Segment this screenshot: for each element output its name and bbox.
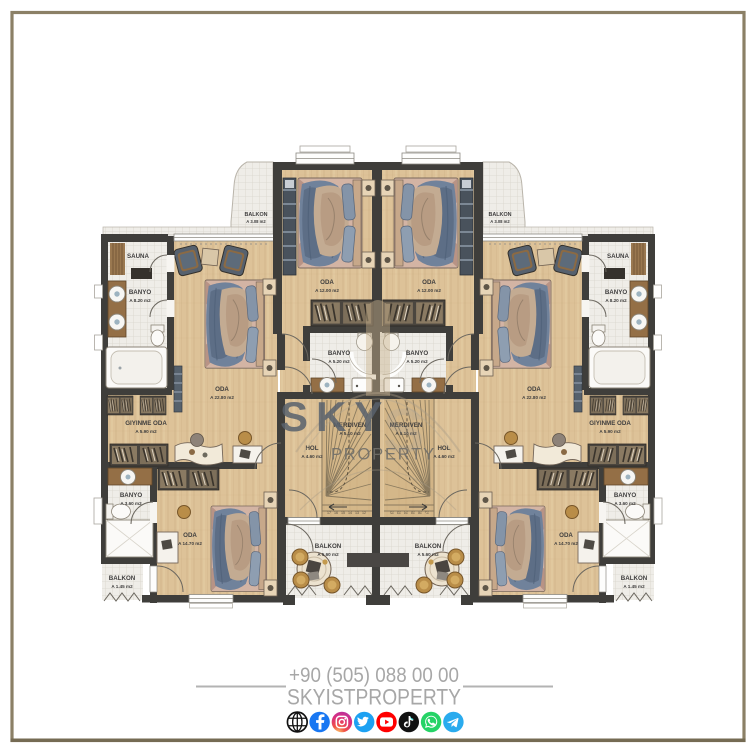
svg-text:ODA: ODA bbox=[527, 386, 541, 393]
svg-text:A 14.70 m2: A 14.70 m2 bbox=[554, 541, 578, 546]
svg-text:A 8.20 m2: A 8.20 m2 bbox=[129, 298, 151, 303]
svg-text:BALKON: BALKON bbox=[244, 212, 267, 218]
svg-text:14: 14 bbox=[348, 511, 352, 515]
svg-text:BALKON: BALKON bbox=[415, 543, 442, 550]
svg-text:ODA: ODA bbox=[422, 279, 436, 286]
svg-text:GIYINME ODA: GIYINME ODA bbox=[589, 420, 631, 427]
svg-text:16: 16 bbox=[418, 511, 422, 515]
svg-text:ODA: ODA bbox=[215, 386, 229, 393]
svg-text:BANYO: BANYO bbox=[605, 289, 628, 296]
svg-text:14: 14 bbox=[404, 511, 408, 515]
svg-text:A 5.20 m2: A 5.20 m2 bbox=[328, 359, 350, 364]
svg-text:A 22.80 m2: A 22.80 m2 bbox=[522, 395, 546, 400]
svg-text:A 5.60 m2: A 5.60 m2 bbox=[417, 552, 439, 557]
svg-text:A 4.60 m2: A 4.60 m2 bbox=[433, 454, 455, 459]
svg-text:HOL: HOL bbox=[305, 445, 318, 452]
svg-text:A 1.45 m2: A 1.45 m2 bbox=[623, 584, 645, 589]
svg-text:A 14.70 m2: A 14.70 m2 bbox=[178, 541, 202, 546]
svg-text:SKYISTPROPERTY: SKYISTPROPERTY bbox=[287, 685, 461, 710]
svg-text:BANYO: BANYO bbox=[614, 492, 637, 499]
svg-text:A 5.90 m2: A 5.90 m2 bbox=[599, 429, 621, 434]
svg-text:17: 17 bbox=[327, 511, 331, 515]
svg-text:A 1.45 m2: A 1.45 m2 bbox=[111, 584, 133, 589]
svg-text:A 12.00 m2: A 12.00 m2 bbox=[417, 288, 441, 293]
svg-text:A 4.60 m2: A 4.60 m2 bbox=[301, 454, 323, 459]
svg-text:A 3.08 m2: A 3.08 m2 bbox=[490, 219, 510, 224]
svg-text:SAUNA: SAUNA bbox=[607, 253, 630, 260]
svg-text:A 22.80 m2: A 22.80 m2 bbox=[210, 395, 234, 400]
svg-text:SAUNA: SAUNA bbox=[127, 253, 150, 260]
svg-text:BANYO: BANYO bbox=[120, 492, 143, 499]
svg-text:15: 15 bbox=[341, 511, 345, 515]
svg-text:SKY: SKY bbox=[280, 393, 390, 440]
svg-text:A 5.90 m2: A 5.90 m2 bbox=[135, 429, 157, 434]
svg-text:17: 17 bbox=[425, 511, 429, 515]
svg-text:A 5.20 m2: A 5.20 m2 bbox=[406, 359, 428, 364]
svg-text:16: 16 bbox=[334, 511, 338, 515]
svg-text:A 8.20 m2: A 8.20 m2 bbox=[605, 298, 627, 303]
svg-text:BALKON: BALKON bbox=[488, 212, 511, 218]
svg-text:A 3.08 m2: A 3.08 m2 bbox=[246, 219, 266, 224]
svg-text:13: 13 bbox=[397, 511, 401, 515]
svg-text:ODA: ODA bbox=[320, 279, 334, 286]
svg-text:12: 12 bbox=[362, 511, 366, 515]
svg-text:15: 15 bbox=[411, 511, 415, 515]
svg-text:BANYO: BANYO bbox=[328, 350, 351, 357]
svg-text:ODA: ODA bbox=[183, 532, 197, 539]
svg-text:BANYO: BANYO bbox=[406, 350, 429, 357]
svg-text:12: 12 bbox=[390, 511, 394, 515]
svg-text:A 5.60 m2: A 5.60 m2 bbox=[317, 552, 339, 557]
svg-text:A 3.60 m2: A 3.60 m2 bbox=[120, 501, 142, 506]
svg-text:A 12.00 m2: A 12.00 m2 bbox=[315, 288, 339, 293]
svg-text:BANYO: BANYO bbox=[129, 289, 152, 296]
svg-text:A 3.60 m2: A 3.60 m2 bbox=[614, 501, 636, 506]
svg-text:PROPERTY: PROPERTY bbox=[331, 446, 436, 464]
svg-text:13: 13 bbox=[355, 511, 359, 515]
svg-text:GIYINME ODA: GIYINME ODA bbox=[125, 420, 167, 427]
svg-text:BALKON: BALKON bbox=[109, 575, 136, 582]
svg-text:BALKON: BALKON bbox=[315, 543, 342, 550]
svg-text:ODA: ODA bbox=[559, 532, 573, 539]
svg-text:BALKON: BALKON bbox=[621, 575, 648, 582]
